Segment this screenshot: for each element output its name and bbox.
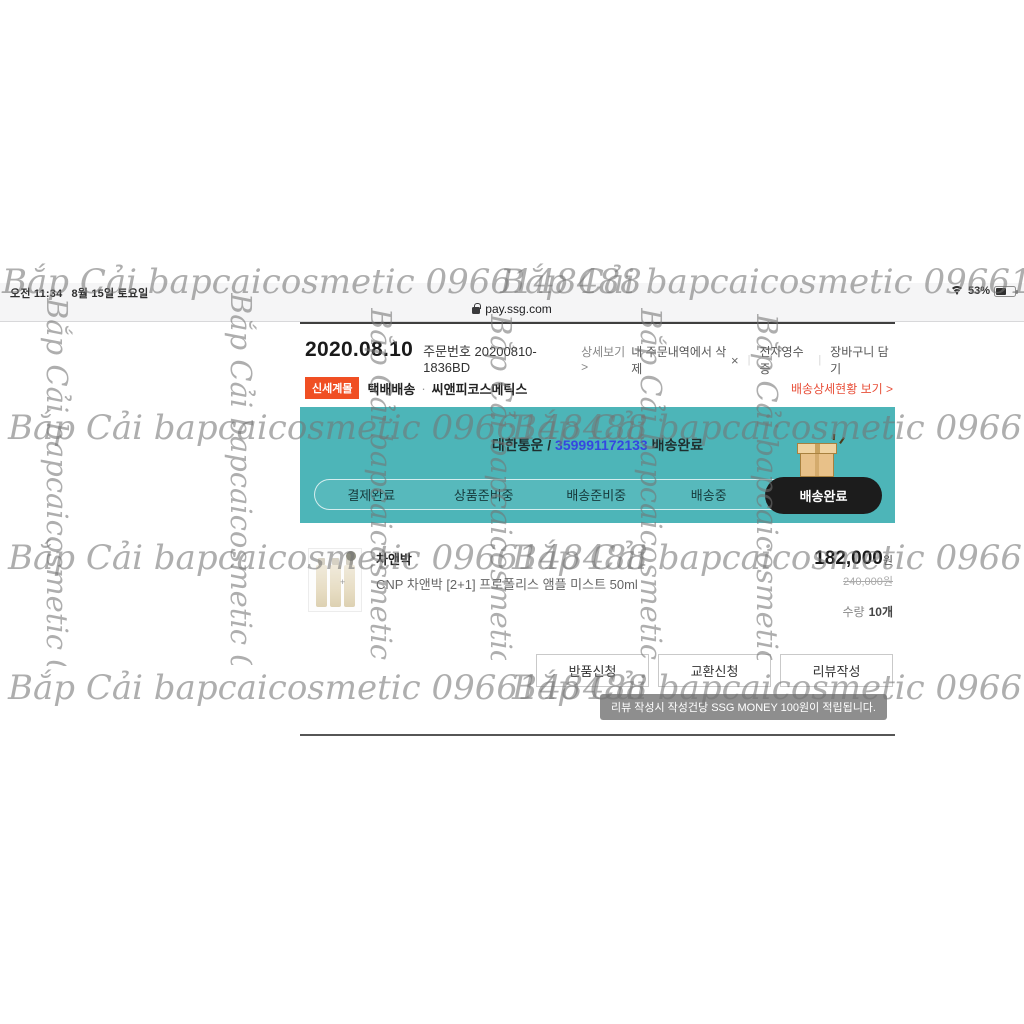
add-to-cart-link[interactable]: 장바구니 담기 xyxy=(830,343,893,377)
step-delivered-badge: 배송완료 xyxy=(765,477,882,514)
step-preparing-shipment: 배송준비중 xyxy=(540,480,653,509)
price-unit: 원 xyxy=(883,555,893,567)
order-card: 2020.08.10 주문번호 20200810-1836BD 상세보기 > 내… xyxy=(300,322,895,736)
battery-icon xyxy=(994,286,1016,297)
sale-price: 182,000원 xyxy=(814,548,893,570)
status-date: 8월 15일 토요일 xyxy=(71,288,148,300)
delete-order-link[interactable]: 내 주문내역에서 삭제 xyxy=(631,343,727,377)
tracking-number-link[interactable]: 359991172133 xyxy=(555,437,648,453)
quantity-value: 10개 xyxy=(869,605,893,619)
plus-sign: + xyxy=(340,577,345,587)
order-detail-link[interactable]: 상세보기 > xyxy=(581,343,631,374)
step-payment-complete: 결제완료 xyxy=(315,480,428,509)
actions-row: 반품신청 교환신청 리뷰작성 xyxy=(536,654,893,687)
carrier-name: 대한통운 / xyxy=(492,437,551,453)
e-receipt-link[interactable]: 전자영수증 xyxy=(759,343,809,377)
status-time: 오전 11:34 xyxy=(10,288,62,300)
product-name[interactable]: CNP 차앤박 [2+1] 프로폴리스 앰플 미스트 50ml xyxy=(376,574,638,593)
quantity-line: 수량10개 xyxy=(814,603,893,620)
package-icon xyxy=(797,443,837,477)
watermark-text-vertical: Bắp Cải bapcaicosmetic 0966148488 xyxy=(224,293,258,665)
product-brand: 차앤박 xyxy=(376,549,638,568)
product-info: 차앤박 CNP 차앤박 [2+1] 프로폴리스 앰플 미스트 50ml xyxy=(376,548,638,620)
product-thumbnail[interactable]: + xyxy=(308,548,362,612)
order-header-links: 내 주문내역에서 삭제 × | 전자영수증 | 장바구니 담기 xyxy=(631,343,893,377)
shipping-type: 택배배송 xyxy=(367,379,415,398)
browser-chrome: 오전 11:348월 15일 토요일 53% pay.ssg.com xyxy=(0,283,1024,322)
step-in-transit: 배송중 xyxy=(653,480,766,509)
wifi-icon xyxy=(950,286,964,297)
product-row: + 차앤박 CNP 차앤박 [2+1] 프로폴리스 앰플 미스트 50ml 18… xyxy=(308,548,893,620)
delivery-status-text: 배송완료 xyxy=(652,437,704,453)
return-request-button[interactable]: 반품신청 xyxy=(536,654,649,687)
order-date: 2020.08.10 xyxy=(305,338,413,362)
link-divider: | xyxy=(818,354,821,366)
bottle-image xyxy=(316,565,327,607)
battery-percent: 53% xyxy=(968,285,990,297)
order-header: 2020.08.10 주문번호 20200810-1836BD 상세보기 > 내… xyxy=(305,338,893,377)
delivery-steps: 결제완료 상품준비중 배송준비중 배송중 xyxy=(315,480,765,509)
section-divider xyxy=(300,734,895,736)
link-divider: | xyxy=(748,354,751,366)
original-price: 240,000원 xyxy=(814,573,893,589)
brand-seal-icon xyxy=(346,551,356,561)
url-text: pay.ssg.com xyxy=(485,302,551,316)
order-number: 주문번호 20200810-1836BD xyxy=(423,341,571,375)
write-review-button[interactable]: 리뷰작성 xyxy=(780,654,893,687)
exchange-request-button[interactable]: 교환신청 xyxy=(658,654,771,687)
status-time-date: 오전 11:348월 15일 토요일 xyxy=(10,285,158,301)
seller-row: 신세계몰 택배배송 · 씨앤피코스메틱스 배송상세현황 보기 > xyxy=(305,377,893,399)
price-block: 182,000원 240,000원 수량10개 xyxy=(814,548,893,620)
lock-icon xyxy=(472,307,480,314)
step-preparing-product: 상품준비중 xyxy=(428,480,541,509)
bottle-image xyxy=(330,565,341,607)
delivery-banner: 대한통운 / 359991172133 배송완료 결제완료 상품준비중 배송준비… xyxy=(300,407,895,523)
delivery-progress-track: 결제완료 상품준비중 배송준비중 배송중 배송완료 xyxy=(314,479,881,510)
page: 오전 11:348월 15일 토요일 53% pay.ssg.com 2020.… xyxy=(0,0,1024,1024)
status-indicators: 53% xyxy=(950,285,1016,297)
watermark-text-vertical: Bắp Cải bapcaicosmetic 0966148488 xyxy=(40,298,74,666)
review-reward-tooltip: 리뷰 작성시 작성건당 SSG MONEY 100원이 적립됩니다. xyxy=(600,694,887,720)
address-bar[interactable]: pay.ssg.com xyxy=(0,302,1024,316)
delivery-status-link[interactable]: 배송상세현황 보기 > xyxy=(791,380,893,397)
dot-separator: · xyxy=(421,381,425,396)
mall-badge: 신세계몰 xyxy=(305,377,359,399)
quantity-label: 수량 xyxy=(843,605,865,619)
seller-name: 씨앤피코스메틱스 xyxy=(432,379,528,398)
close-icon[interactable]: × xyxy=(731,353,739,368)
